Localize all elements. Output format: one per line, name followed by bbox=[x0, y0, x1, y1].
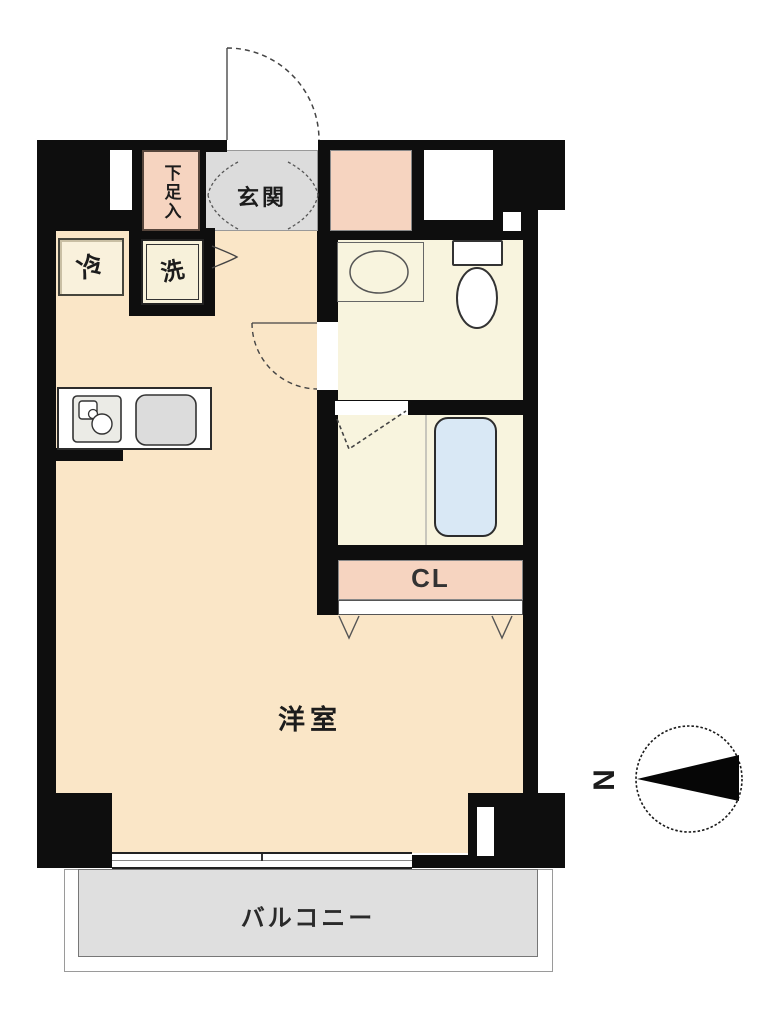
shoe-storage-cabinet: 下足入 bbox=[142, 150, 200, 231]
balcony-label: バルコニー bbox=[78, 898, 538, 933]
storage-area bbox=[330, 150, 412, 231]
wall-above-shoe-storage bbox=[142, 140, 206, 150]
window-meeting-stile bbox=[261, 854, 263, 861]
floor-plan: 下足入 冷 洗 bbox=[0, 0, 773, 1024]
compass-north-label: N bbox=[583, 759, 627, 801]
pillar-bottom-left bbox=[37, 793, 112, 868]
entrance-label: 玄関 bbox=[206, 180, 318, 212]
washing-machine-space: 洗 bbox=[141, 239, 204, 305]
kitchen-counter bbox=[57, 387, 212, 450]
balcony-window bbox=[112, 852, 412, 869]
closet-door bbox=[338, 600, 523, 615]
wall-niche-top-left bbox=[110, 150, 132, 210]
refrigerator-space: 冷 bbox=[58, 238, 124, 296]
pipe-space bbox=[424, 150, 493, 220]
entry-door-arc bbox=[227, 48, 319, 140]
western-room-label: 洋室 bbox=[240, 698, 380, 737]
wall-left bbox=[37, 140, 56, 793]
washer-label: 洗 bbox=[137, 236, 207, 307]
wall-entrance-right bbox=[318, 140, 330, 231]
vanity-counter bbox=[337, 242, 424, 302]
washroom-doorway bbox=[317, 322, 338, 390]
bathroom-doorway bbox=[335, 401, 408, 415]
wall-washroom-top bbox=[317, 231, 523, 240]
compass-circle bbox=[636, 726, 742, 832]
closet-label: CL bbox=[338, 563, 523, 594]
refrigerator-label: 冷 bbox=[51, 229, 130, 304]
wall-entry-left bbox=[206, 140, 227, 152]
wall-right bbox=[523, 210, 538, 793]
pillar-slot-window bbox=[477, 807, 494, 856]
north-arrow bbox=[637, 755, 739, 801]
wall-above-storage bbox=[330, 140, 412, 150]
bathtub bbox=[434, 417, 497, 537]
toilet-tank bbox=[452, 240, 503, 266]
wall-bottom-step bbox=[412, 855, 468, 868]
wall-bathroom-bottom bbox=[317, 545, 538, 560]
shoe-storage-label: 下足入 bbox=[159, 156, 184, 228]
wall-top-right-block bbox=[495, 140, 565, 210]
wall-shoe-storage-right bbox=[199, 140, 206, 231]
